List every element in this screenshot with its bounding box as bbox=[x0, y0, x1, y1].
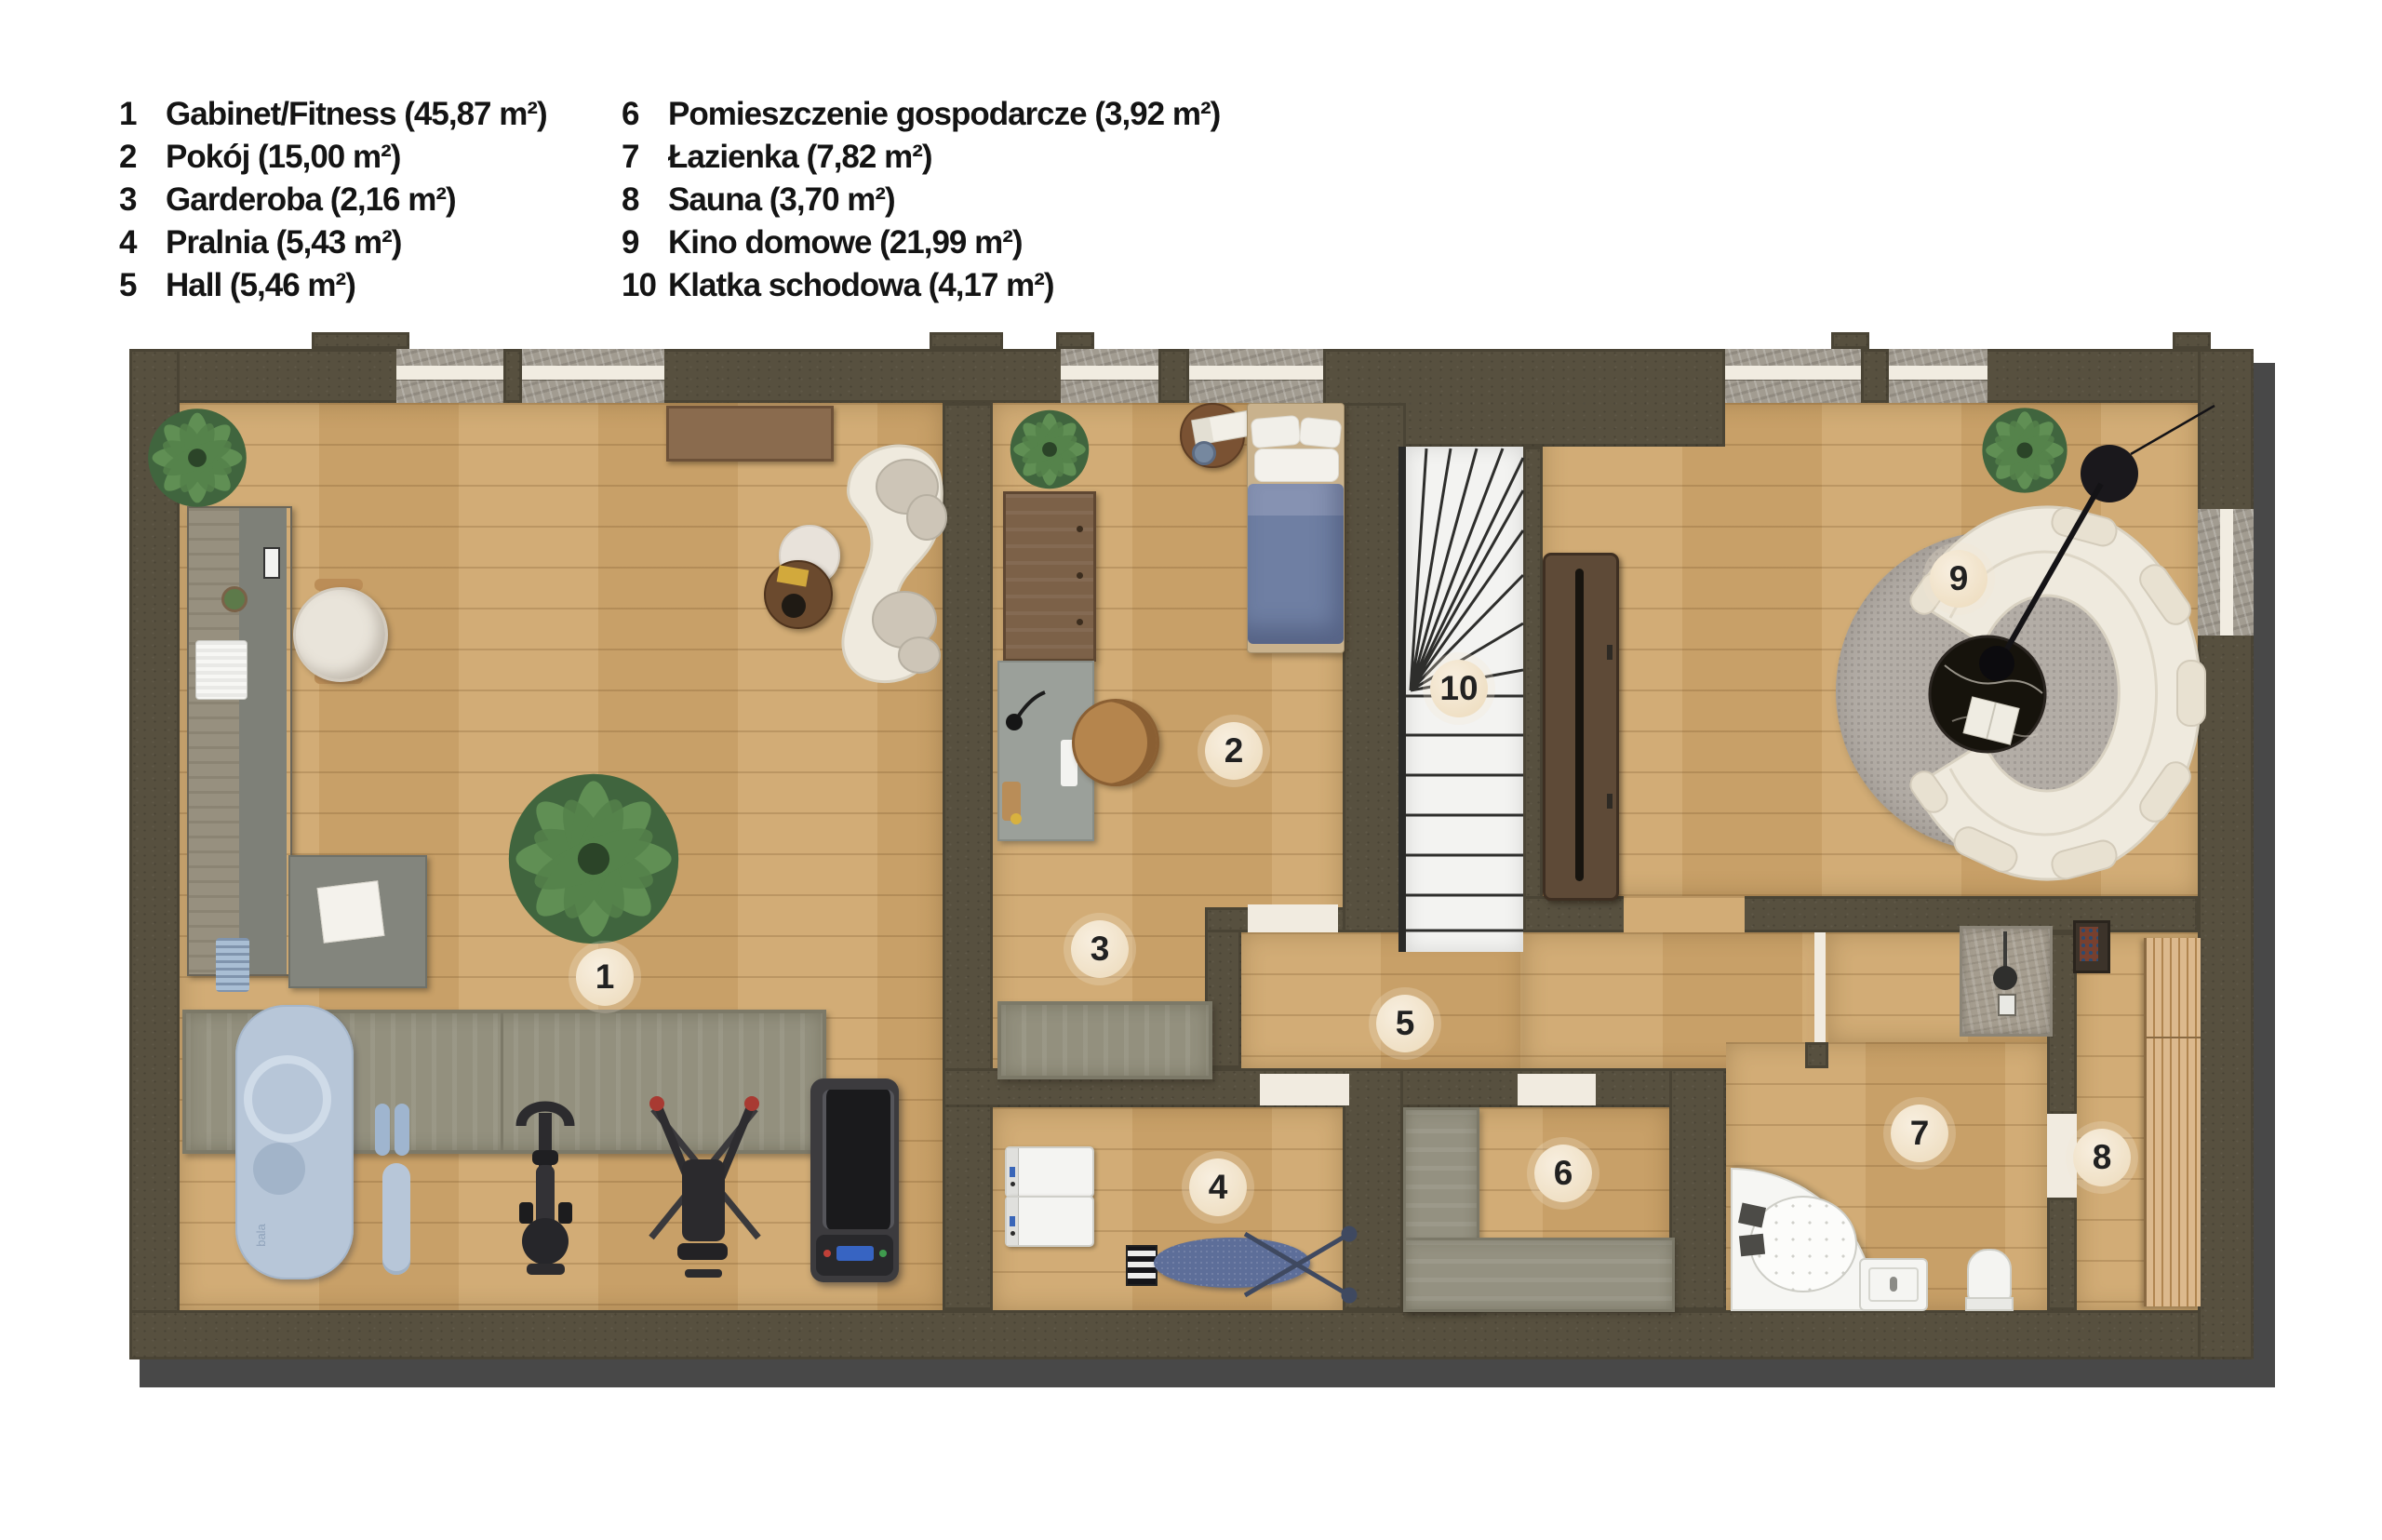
wall-stub bbox=[1831, 332, 1869, 349]
room-badge-3: 3 bbox=[1071, 920, 1129, 978]
room-badge-6: 6 bbox=[1534, 1145, 1592, 1202]
door-opening-room9 bbox=[1624, 896, 1745, 932]
staircase-stringer bbox=[1398, 447, 1406, 952]
treadmill-console bbox=[816, 1235, 893, 1276]
brand-text: bala bbox=[254, 1224, 268, 1247]
badge-number: 3 bbox=[1091, 930, 1110, 969]
treadmill-button bbox=[879, 1250, 887, 1257]
shower-tray bbox=[1960, 926, 2053, 1037]
iron-rest bbox=[1126, 1245, 1158, 1286]
yoga-board-disc bbox=[253, 1143, 305, 1195]
room-badge-1: 1 bbox=[576, 948, 634, 1006]
console-table bbox=[666, 406, 834, 462]
tub-headrest bbox=[1738, 1203, 1766, 1228]
washer-led bbox=[1010, 1167, 1015, 1177]
paper-sheet bbox=[317, 880, 385, 944]
laptop bbox=[195, 640, 248, 700]
exercise-roller-strip bbox=[216, 938, 249, 992]
toilet-tank bbox=[1965, 1297, 2014, 1311]
badge-number: 2 bbox=[1224, 731, 1244, 770]
window-room9-mullion bbox=[1861, 349, 1889, 403]
wall-stair-west bbox=[1343, 403, 1406, 932]
plan-shadow-bottom bbox=[140, 1359, 2275, 1387]
wall-stub bbox=[930, 332, 1003, 349]
badge-number: 1 bbox=[595, 957, 615, 997]
cabinet-handle bbox=[1607, 645, 1613, 660]
door-bathroom-leaf bbox=[1814, 932, 1826, 1042]
toilet-bowl bbox=[1967, 1249, 2012, 1305]
plan-shadow-right bbox=[2254, 363, 2275, 1359]
room-badge-4: 4 bbox=[1189, 1158, 1247, 1216]
tub-headrest bbox=[1739, 1234, 1765, 1257]
floorplan-page: { "legend": { "col1": [ {"num":"1","labe… bbox=[0, 0, 2382, 1540]
wall-room1-east bbox=[943, 403, 993, 1310]
toilet bbox=[1965, 1249, 2010, 1307]
desk-wood-half bbox=[189, 508, 239, 974]
wall-bath-sauna-lower bbox=[2047, 1198, 2077, 1310]
cabinet-slot bbox=[1575, 569, 1584, 881]
foam-roller bbox=[382, 1163, 410, 1275]
mug bbox=[1192, 441, 1216, 465]
shower-head bbox=[1993, 966, 2017, 990]
badge-number: 10 bbox=[1439, 669, 1478, 708]
treadmill bbox=[810, 1078, 899, 1282]
badge-number: 9 bbox=[1949, 559, 1969, 598]
utility-counter-horizontal bbox=[1403, 1238, 1675, 1312]
window-room2-mullion bbox=[1158, 349, 1189, 403]
desk-plant bbox=[221, 586, 248, 612]
badge-number: 4 bbox=[1209, 1168, 1228, 1207]
room-badge-2: 2 bbox=[1205, 722, 1263, 780]
dresser-knob bbox=[1077, 572, 1083, 579]
window-right-wall-glass bbox=[2220, 509, 2233, 636]
dresser-knob bbox=[1077, 526, 1083, 532]
room-badge-7: 7 bbox=[1891, 1105, 1948, 1162]
sauna-bench bbox=[2144, 938, 2201, 1306]
wall-right bbox=[2198, 349, 2254, 1359]
wall-room6-bath bbox=[1669, 1068, 1726, 1310]
table-decor bbox=[782, 594, 806, 618]
floorplan: bala bbox=[0, 0, 2382, 1540]
wall-stub bbox=[1056, 332, 1094, 349]
dresser-knob bbox=[1077, 619, 1083, 625]
brand-label: bala bbox=[254, 1224, 268, 1247]
hall-floor-west bbox=[1241, 932, 1523, 1068]
phone bbox=[263, 547, 280, 579]
bedroom-chair bbox=[1072, 699, 1159, 786]
sink-faucet bbox=[1890, 1277, 1897, 1292]
door-room6 bbox=[1518, 1074, 1596, 1105]
treadmill-button bbox=[823, 1250, 831, 1257]
badge-number: 8 bbox=[2093, 1138, 2112, 1177]
cabinet-handle bbox=[1607, 794, 1613, 809]
pillow bbox=[1254, 449, 1339, 482]
shower-soap bbox=[1998, 994, 2016, 1016]
bench-seam bbox=[501, 1013, 503, 1150]
sauna-heater bbox=[2073, 920, 2110, 973]
window-room1-glass bbox=[396, 366, 664, 380]
door-room2 bbox=[1248, 904, 1338, 932]
wall-room4-room6 bbox=[1343, 1068, 1403, 1310]
treadmill-belt bbox=[823, 1090, 894, 1229]
room-badge-10: 10 bbox=[1430, 660, 1488, 717]
room-badge-8: 8 bbox=[2073, 1129, 2131, 1186]
badge-number: 5 bbox=[1396, 1004, 1415, 1043]
duvet bbox=[1248, 484, 1344, 644]
shower-bar bbox=[2003, 931, 2007, 969]
heater-stones bbox=[2080, 927, 2098, 961]
sauna-bench-seam bbox=[2147, 1037, 2201, 1038]
yoga-board-ring bbox=[244, 1055, 331, 1143]
bed bbox=[1247, 403, 1345, 653]
dryer-machine bbox=[1005, 1196, 1094, 1247]
door-room4 bbox=[1260, 1074, 1349, 1105]
dresser bbox=[1003, 491, 1096, 662]
window-room9-glass bbox=[1725, 366, 1987, 380]
dumbbell bbox=[395, 1104, 409, 1156]
window-room2-glass bbox=[1061, 366, 1323, 380]
washing-machine bbox=[1005, 1146, 1094, 1198]
wall-stair-east bbox=[1523, 447, 1543, 932]
ironing-board bbox=[1154, 1238, 1310, 1288]
room-badge-5: 5 bbox=[1376, 995, 1434, 1052]
washer-led bbox=[1010, 1216, 1015, 1226]
wall-stub bbox=[312, 332, 409, 349]
badge-number: 7 bbox=[1910, 1114, 1930, 1153]
pillow bbox=[1299, 417, 1343, 449]
round-rug bbox=[1836, 531, 2156, 851]
wall-stub bbox=[2173, 332, 2211, 349]
wall-left bbox=[129, 349, 180, 1359]
office-chair bbox=[293, 587, 388, 682]
wall-bottom bbox=[129, 1310, 2254, 1359]
media-cabinet bbox=[1543, 553, 1619, 901]
wall-bath-door-stub bbox=[1805, 1042, 1828, 1068]
pillow bbox=[1251, 415, 1302, 449]
window-room1-mullion bbox=[503, 349, 522, 403]
dumbbell bbox=[375, 1104, 390, 1156]
room-badge-9: 9 bbox=[1930, 550, 1987, 608]
treadmill-screen bbox=[836, 1246, 874, 1261]
wardrobe-bench bbox=[997, 1001, 1212, 1079]
washer-dial bbox=[1010, 1231, 1015, 1236]
washer-dial bbox=[1010, 1182, 1015, 1186]
bathroom-sink bbox=[1859, 1258, 1928, 1311]
desk-accent bbox=[1010, 813, 1022, 824]
badge-number: 6 bbox=[1554, 1154, 1573, 1193]
